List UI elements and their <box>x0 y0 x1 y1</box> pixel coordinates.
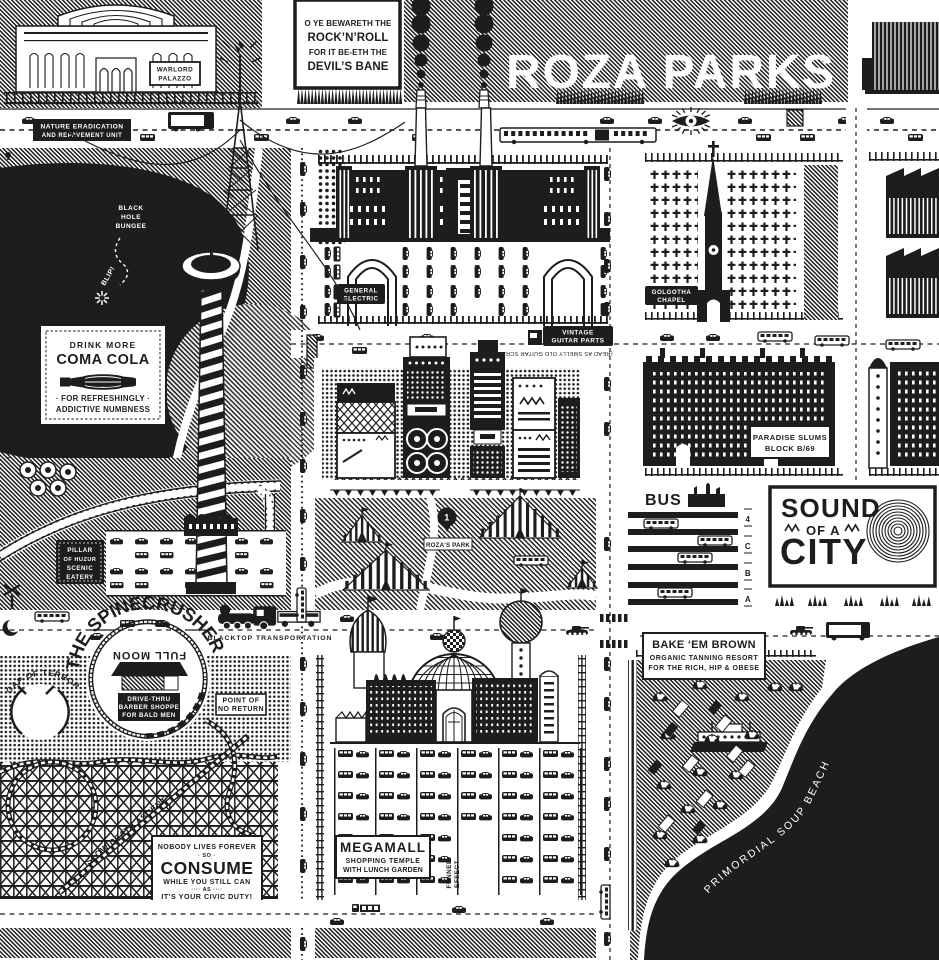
svg-text:BARBER SHOPPE: BARBER SHOPPE <box>119 704 179 711</box>
svg-text:EATERY: EATERY <box>66 574 94 581</box>
svg-text:B: B <box>745 569 751 578</box>
svg-text:NATURE ERADICATION: NATURE ERADICATION <box>40 124 123 131</box>
svg-text:DRIVE-THRU: DRIVE-THRU <box>127 696 170 703</box>
svg-text:EFFECT: EFFECT <box>454 860 461 888</box>
svg-text:DRINK MORE: DRINK MORE <box>70 340 137 350</box>
svg-text:BUNGEE: BUNGEE <box>116 223 147 230</box>
svg-text:AND REPAVEMENT UNIT: AND REPAVEMENT UNIT <box>42 133 123 139</box>
svg-text:HOLE: HOLE <box>121 214 141 221</box>
svg-text:BAKE ‘EM BROWN: BAKE ‘EM BROWN <box>652 639 756 651</box>
svg-text:WARLORD: WARLORD <box>157 67 194 74</box>
svg-text:BLACK: BLACK <box>118 205 143 212</box>
svg-text:FULL MOON: FULL MOON <box>112 649 186 661</box>
svg-text:IT'S YOUR CIVIC DUTY!: IT'S YOUR CIVIC DUTY! <box>161 892 252 901</box>
svg-text:FUNNEL: FUNNEL <box>446 860 453 889</box>
svg-text:VINTAGE: VINTAGE <box>562 330 594 337</box>
svg-text:GUITAR PARTS: GUITAR PARTS <box>552 338 605 345</box>
svg-text:O YE BEWARETH THE: O YE BEWARETH THE <box>305 19 392 28</box>
svg-text:ROCK’N’ROLL: ROCK’N’ROLL <box>308 32 389 44</box>
svg-text:CONSUME: CONSUME <box>161 858 254 878</box>
svg-text:BLOCK B/69: BLOCK B/69 <box>765 444 815 453</box>
svg-text:ROZA'S PARK: ROZA'S PARK <box>426 542 470 549</box>
svg-text:4: 4 <box>746 515 751 524</box>
svg-text:BLACKTOP TRANSPORTATION: BLACKTOP TRANSPORTATION <box>208 635 333 642</box>
svg-text:SHOPPING TEMPLE: SHOPPING TEMPLE <box>346 858 421 865</box>
svg-text:POINT OF: POINT OF <box>222 698 259 705</box>
svg-text:DEVIL’S BANE: DEVIL’S BANE <box>307 61 388 73</box>
svg-text:PARADISE SLUMS: PARADISE SLUMS <box>753 433 827 442</box>
svg-text:· FOR REFRESHINGLY ·: · FOR REFRESHINGLY · <box>56 394 150 403</box>
svg-text:1: 1 <box>444 513 450 524</box>
svg-text:CHAPEL: CHAPEL <box>657 297 685 304</box>
svg-text:MEGAMALL: MEGAMALL <box>340 840 426 855</box>
svg-text:C: C <box>745 542 751 551</box>
svg-text:NO RETURN: NO RETURN <box>218 706 264 713</box>
svg-text:ELECTRIC: ELECTRIC <box>344 296 379 303</box>
svg-text:PALAZZO: PALAZZO <box>158 76 191 83</box>
svg-text:(READ AS SMELLY OLD GUITAR SCR: (READ AS SMELLY OLD GUITAR SCRAPS) <box>491 350 612 356</box>
svg-text:ADDICTIVE NUMBNESS: ADDICTIVE NUMBNESS <box>56 405 150 414</box>
svg-text:BUS: BUS <box>645 492 682 509</box>
svg-text:SOUND: SOUND <box>781 493 881 523</box>
svg-text:CITY: CITY <box>780 531 868 572</box>
svg-text:SCENIC: SCENIC <box>67 565 93 572</box>
svg-text:NOBODY LIVES FOREVER: NOBODY LIVES FOREVER <box>158 844 257 851</box>
svg-text:WITH LUNCH GARDEN: WITH LUNCH GARDEN <box>343 867 423 874</box>
svg-text:FOR IT BE-ETH THE: FOR IT BE-ETH THE <box>309 48 388 57</box>
svg-text:COMA COLA: COMA COLA <box>56 352 149 368</box>
svg-text:WHILE YOU STILL CAN: WHILE YOU STILL CAN <box>163 879 250 886</box>
svg-text:FOR THE RICH, HIP & OBESE: FOR THE RICH, HIP & OBESE <box>648 665 759 672</box>
svg-text:GOLGOTHA: GOLGOTHA <box>652 289 692 296</box>
svg-text:FOR BALD MEN: FOR BALD MEN <box>122 712 175 719</box>
svg-text:GENERAL: GENERAL <box>344 288 378 295</box>
svg-text:A: A <box>745 595 751 604</box>
svg-text:ORGANIC TANNING RESORT: ORGANIC TANNING RESORT <box>650 655 759 662</box>
svg-text:PILLAR: PILLAR <box>67 547 92 554</box>
svg-text:OF HUZUR: OF HUZUR <box>64 557 97 563</box>
